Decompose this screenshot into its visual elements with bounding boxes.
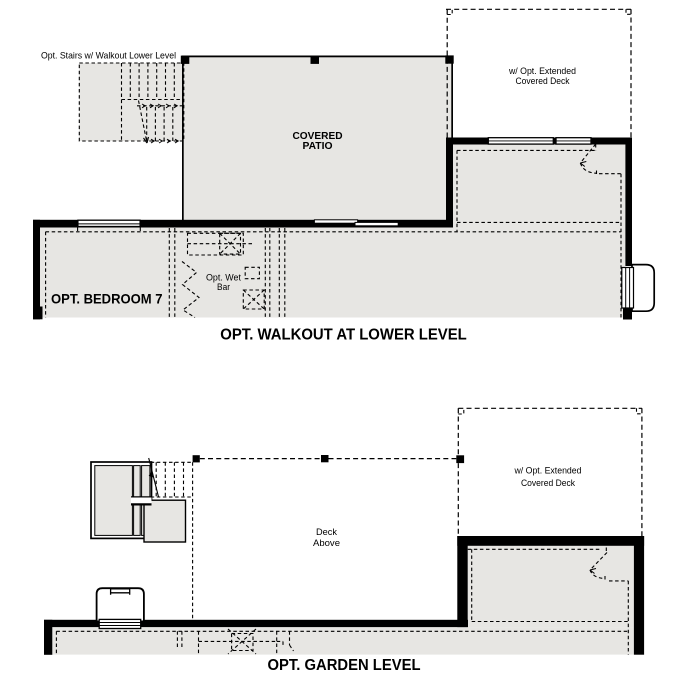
svg-text:OPT. WALKOUT AT LOWER LEVEL: OPT. WALKOUT AT LOWER LEVEL <box>220 326 467 343</box>
svg-text:Above: Above <box>313 537 340 548</box>
svg-text:Covered Deck: Covered Deck <box>516 75 570 86</box>
svg-text:Bar: Bar <box>217 282 230 292</box>
svg-text:PATIO: PATIO <box>303 140 333 152</box>
svg-text:OPT. GARDEN LEVEL: OPT. GARDEN LEVEL <box>268 657 421 674</box>
svg-text:w/ Opt. Extended: w/ Opt. Extended <box>514 465 582 476</box>
svg-text:Deck: Deck <box>316 526 337 537</box>
svg-text:Opt. Stairs w/ Walkout Lower L: Opt. Stairs w/ Walkout Lower Level <box>41 50 176 61</box>
svg-text:Covered Deck: Covered Deck <box>521 477 575 488</box>
svg-text:OPT. BEDROOM 7: OPT. BEDROOM 7 <box>51 290 163 306</box>
svg-text:Opt. Wet: Opt. Wet <box>206 273 242 283</box>
